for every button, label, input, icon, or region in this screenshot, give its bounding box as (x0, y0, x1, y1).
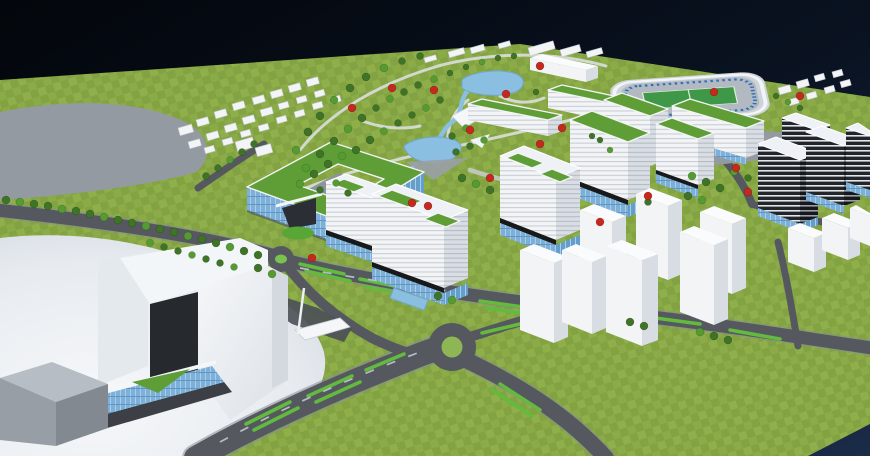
residential-tower-1 (520, 244, 568, 343)
tree (268, 270, 276, 278)
tree (203, 173, 210, 180)
tree (696, 328, 704, 336)
red-tree (558, 124, 566, 132)
tree (72, 207, 80, 215)
tree (231, 264, 238, 271)
scene-canvas (0, 0, 870, 456)
tree (324, 160, 332, 168)
tree (58, 205, 66, 213)
tree (114, 216, 122, 224)
red-tree (744, 188, 752, 196)
masterplan-render (0, 0, 870, 456)
red-tree (486, 174, 494, 182)
tree (344, 125, 352, 133)
tree (2, 196, 10, 204)
upper-lake (462, 71, 523, 95)
tree (358, 114, 366, 122)
tree (745, 175, 752, 182)
tree (399, 58, 406, 65)
dark-tower-3 (846, 123, 870, 198)
tree (338, 152, 346, 160)
red-tree (536, 140, 544, 148)
tree (486, 186, 494, 194)
red-tree (408, 199, 416, 207)
red-tree (348, 104, 356, 112)
tree (170, 228, 178, 236)
tree (401, 89, 408, 96)
arch-right-edge (272, 268, 288, 388)
mini-roundabout-island (275, 255, 287, 264)
tree (607, 147, 613, 153)
tree (330, 137, 338, 145)
tree (688, 172, 696, 180)
red-tree (430, 86, 438, 94)
tree (380, 64, 388, 72)
red-tree (644, 192, 652, 200)
tree (189, 252, 196, 259)
tree (345, 190, 352, 197)
tree (698, 196, 706, 204)
tree (362, 73, 370, 81)
red-tree (466, 126, 474, 134)
tree (304, 128, 312, 136)
tree (142, 222, 150, 230)
tree (702, 178, 710, 186)
tree (44, 202, 52, 210)
red-tree (388, 84, 396, 92)
tree (716, 184, 724, 192)
tree (511, 53, 517, 59)
tree (785, 99, 791, 105)
tree (30, 200, 38, 208)
tree (597, 137, 603, 143)
tree (447, 70, 453, 76)
tree (724, 336, 732, 344)
tree (395, 120, 402, 127)
tree (184, 232, 192, 240)
tree (684, 192, 692, 200)
red-tree (424, 202, 432, 210)
red-tree (536, 62, 544, 70)
tree (366, 136, 374, 144)
tree (239, 149, 246, 156)
tree (467, 143, 474, 150)
tree (316, 112, 324, 120)
tree (352, 146, 360, 154)
tree (227, 157, 234, 164)
tree (437, 97, 444, 104)
tree (481, 137, 488, 144)
tree (161, 244, 168, 251)
tree (310, 170, 318, 178)
tree (640, 322, 648, 330)
tree (330, 96, 338, 104)
tree (156, 225, 164, 233)
tree (533, 89, 539, 95)
red-tree (796, 92, 804, 100)
tree (373, 105, 380, 112)
tree (417, 53, 424, 60)
tree (589, 133, 595, 139)
residential-tower-3 (606, 240, 658, 346)
red-tree (710, 88, 718, 96)
tree (203, 256, 210, 263)
roundabout-island (442, 337, 463, 358)
entrance-hedge (282, 227, 314, 240)
tree (626, 318, 634, 326)
tree (423, 105, 430, 112)
tree (797, 105, 803, 111)
tree (302, 164, 310, 172)
red-tree (596, 218, 604, 226)
tree (448, 296, 456, 304)
tree (147, 240, 154, 247)
red-tree (308, 254, 316, 262)
tree (333, 180, 340, 187)
tree (198, 235, 206, 243)
tree (387, 96, 394, 103)
tree (175, 248, 182, 255)
tree (710, 332, 718, 340)
tree (449, 133, 456, 140)
red-tree (502, 90, 510, 98)
tree (316, 150, 324, 158)
tree (296, 180, 304, 188)
tree (292, 146, 300, 154)
tree (463, 64, 469, 70)
tree (773, 93, 779, 99)
red-tree (732, 164, 740, 172)
tree (215, 165, 222, 172)
tree (479, 59, 485, 65)
tree (217, 260, 224, 267)
residential-tower-4 (680, 226, 728, 325)
tree (453, 149, 460, 156)
tree (212, 239, 220, 247)
tree (240, 247, 248, 255)
tree (254, 251, 262, 259)
tree (495, 55, 501, 61)
tree (409, 112, 416, 119)
tree (100, 213, 108, 221)
tree (434, 292, 442, 300)
tree (86, 210, 94, 218)
tree (458, 174, 466, 182)
residential-tower-2 (562, 244, 606, 334)
tree (346, 84, 354, 92)
tree (128, 219, 136, 227)
tree (317, 187, 324, 194)
tree (254, 264, 262, 272)
tree (472, 180, 480, 188)
tree (431, 76, 438, 83)
tree (381, 128, 388, 135)
tree (251, 141, 258, 148)
tree (16, 198, 24, 206)
tree (415, 82, 422, 89)
tree (226, 243, 234, 251)
